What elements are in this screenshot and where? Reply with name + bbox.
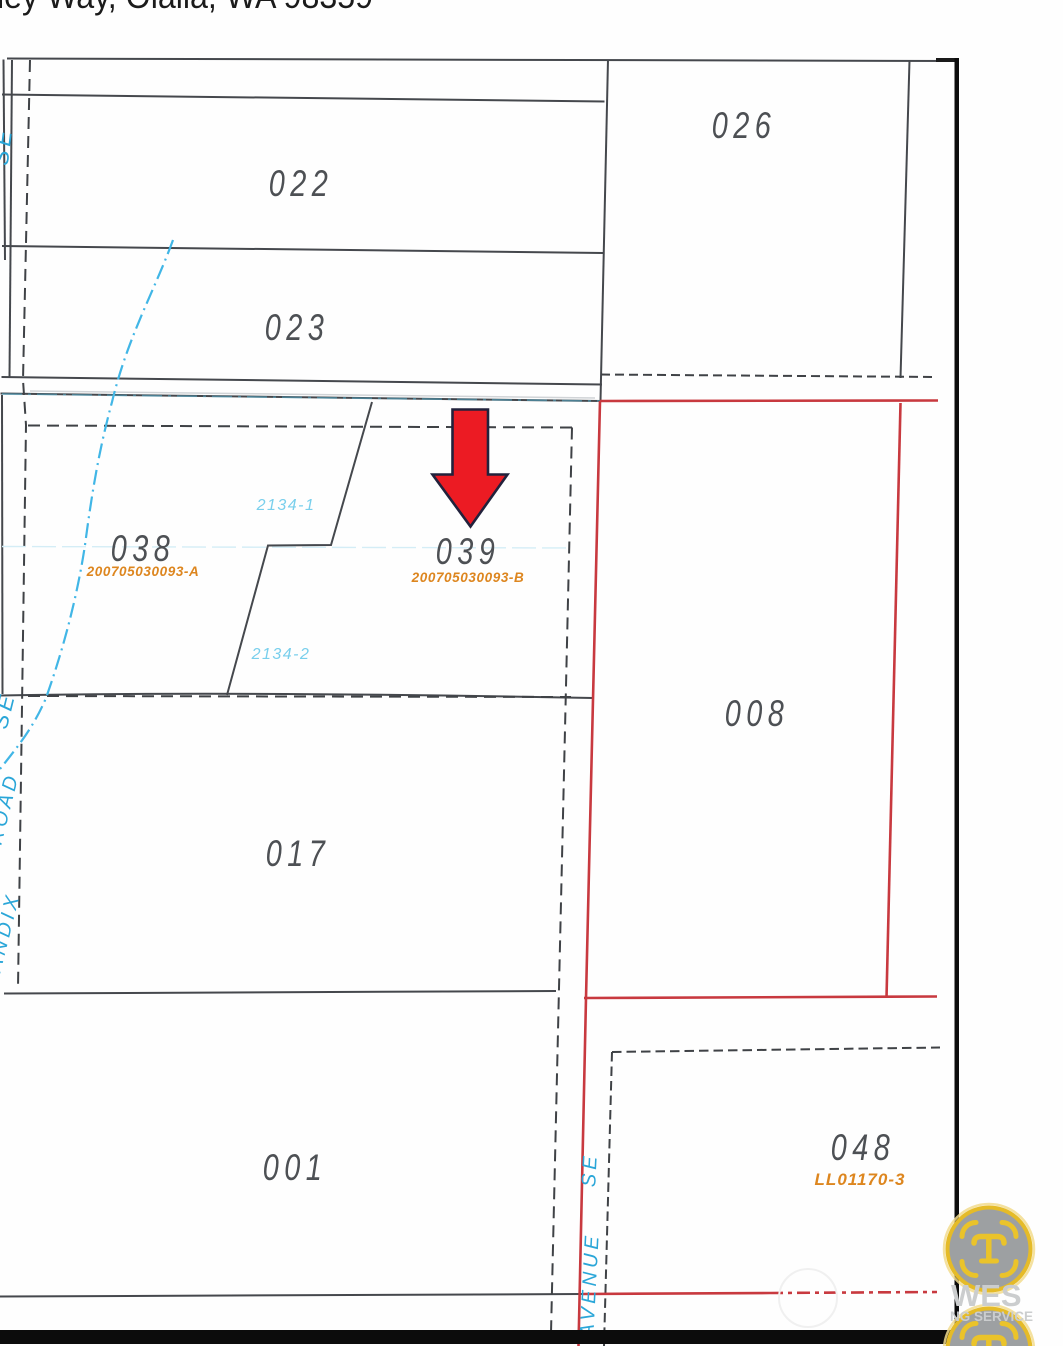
svg-text:008: 008 bbox=[725, 694, 790, 735]
svg-text:SE: SE bbox=[578, 1152, 602, 1188]
svg-text:BANDIX: BANDIX bbox=[0, 890, 25, 991]
svg-text:2134-2: 2134-2 bbox=[251, 646, 311, 663]
svg-text:AVENUE: AVENUE bbox=[576, 1232, 604, 1339]
svg-text:023: 023 bbox=[265, 308, 330, 349]
svg-text:048: 048 bbox=[831, 1128, 896, 1169]
svg-text:LL01170-3: LL01170-3 bbox=[815, 1170, 906, 1189]
svg-text:SE: SE bbox=[0, 689, 20, 731]
svg-text:ley Way, Olalla, WA 98359: ley Way, Olalla, WA 98359 bbox=[0, 0, 373, 16]
svg-text:039: 039 bbox=[436, 532, 501, 573]
svg-text:026: 026 bbox=[712, 106, 777, 147]
svg-text:NG SERVICE: NG SERVICE bbox=[950, 1309, 1033, 1324]
svg-text:022: 022 bbox=[269, 164, 334, 205]
svg-text:200705030093-A: 200705030093-A bbox=[86, 564, 200, 579]
svg-text:200705030093-B: 200705030093-B bbox=[411, 570, 525, 585]
svg-text:017: 017 bbox=[266, 834, 331, 875]
svg-text:001: 001 bbox=[263, 1148, 328, 1189]
svg-text:SE: SE bbox=[0, 125, 17, 167]
svg-text:WES: WES bbox=[951, 1278, 1022, 1313]
svg-text:2134-1: 2134-1 bbox=[256, 497, 316, 514]
